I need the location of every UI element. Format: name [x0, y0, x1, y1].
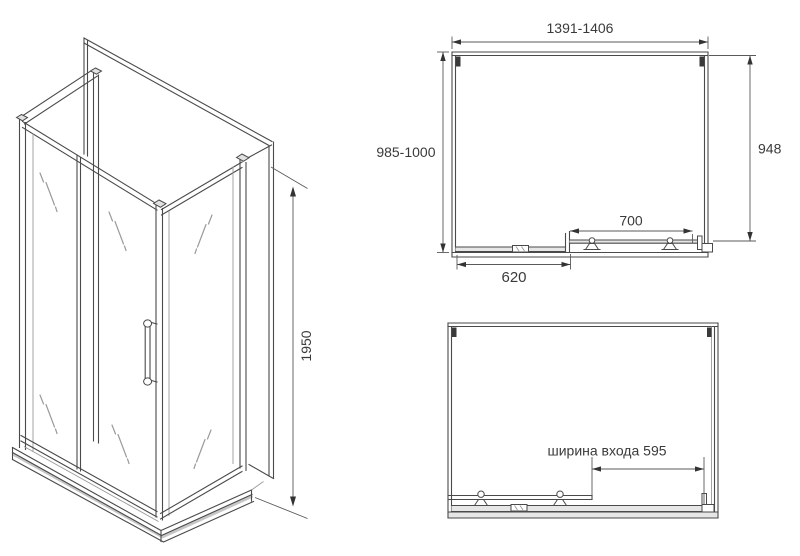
- top-view: 1391-1406 985-1000 948 700: [376, 20, 781, 286]
- entrance-width-label: ширина входа 595: [547, 443, 666, 459]
- front-view: ширина входа 595: [448, 323, 718, 518]
- roller: [552, 491, 568, 506]
- plan-width-dimension: 1391-1406: [452, 20, 708, 49]
- plan-panel-dimension: 620: [457, 254, 571, 286]
- plan-side-label: 948: [758, 141, 782, 157]
- back-panel: [84, 38, 274, 479]
- roller: [473, 491, 489, 506]
- plan-fixed-rail: [456, 232, 570, 253]
- plan-door-label: 700: [619, 213, 643, 229]
- door-handle: [144, 320, 157, 385]
- drawing-canvas: 1950: [0, 0, 800, 556]
- shower-tray: [13, 448, 264, 543]
- iso-view: 1950: [13, 38, 315, 542]
- height-dimension: 1950: [255, 167, 314, 519]
- plan-door-dimension: 700: [570, 213, 693, 244]
- plan-panel-label: 620: [501, 269, 526, 286]
- plan-depth-label: 985-1000: [376, 144, 435, 160]
- front-bottom-track: [452, 505, 712, 512]
- plan-frame: [452, 52, 708, 257]
- front-frame: [448, 323, 718, 518]
- plan-side-dimension: 948: [709, 56, 782, 242]
- entrance-dimension: ширина входа 595: [547, 443, 704, 505]
- plan-width-label: 1391-1406: [547, 20, 614, 36]
- plan-depth-dimension: 985-1000: [376, 52, 449, 253]
- top-frame-bars: [20, 70, 242, 216]
- height-dimension-label: 1950: [298, 330, 314, 361]
- glass-reflection-marks: [40, 173, 212, 469]
- plan-door-rail: [570, 236, 713, 252]
- technical-drawing: 1950: [0, 0, 800, 556]
